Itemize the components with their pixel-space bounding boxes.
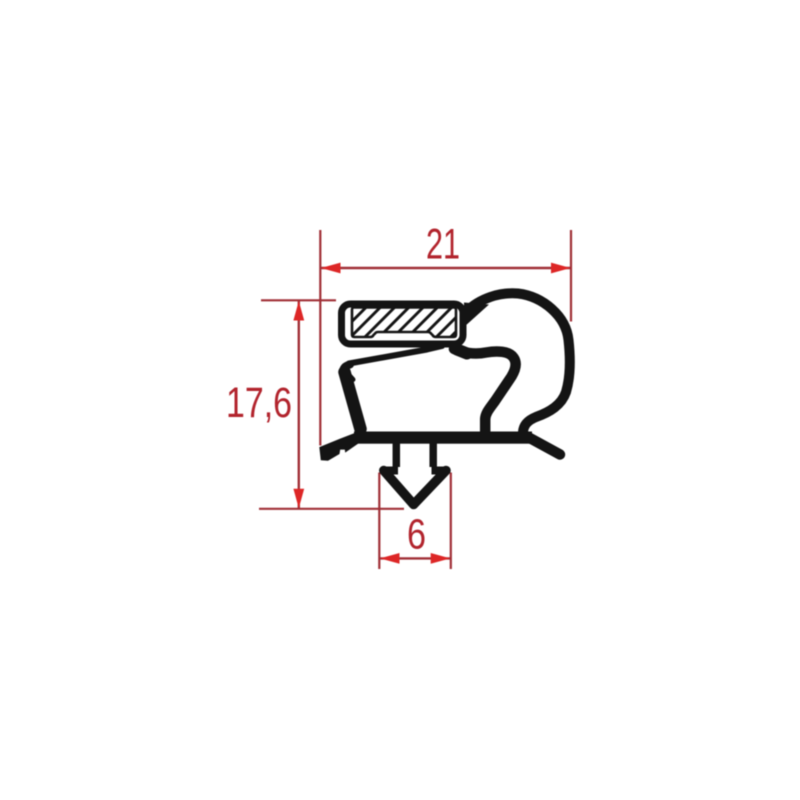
svg-text:21: 21 [426,221,460,269]
svg-text:17,6: 17,6 [226,379,292,427]
svg-text:6: 6 [407,511,426,559]
